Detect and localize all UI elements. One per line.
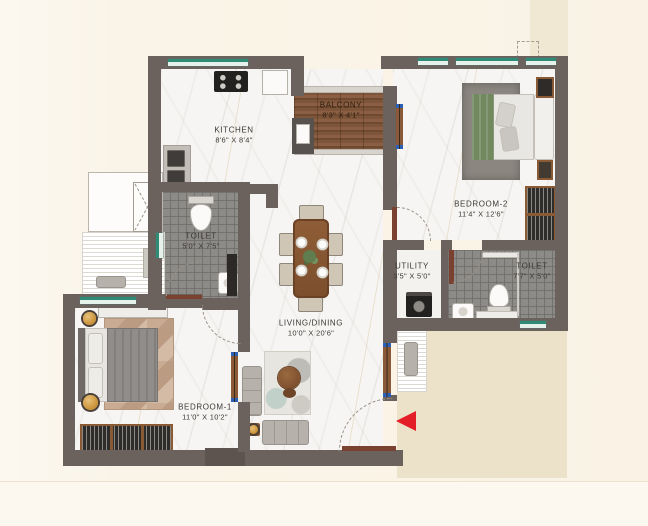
bedroom1-lamp: [83, 312, 96, 325]
living-sliding-door: [383, 343, 391, 397]
room-name: TOILET: [513, 262, 550, 271]
wall: [383, 240, 424, 250]
bedroom2-side-table: [537, 160, 553, 180]
wall: [441, 250, 448, 318]
bedroom2-headboard: [534, 94, 554, 160]
bedroom2-nightstand: [536, 77, 554, 98]
toilet1-cabinet: [227, 254, 237, 296]
bedroom2-pillow: [499, 126, 520, 152]
wall: [555, 56, 568, 331]
room-name: UTILITY: [393, 262, 430, 271]
washing-machine: [406, 292, 432, 317]
wall: [383, 86, 397, 210]
room-name: KITCHEN: [214, 126, 253, 135]
foyer-bench: [96, 276, 126, 288]
toilet1-wc-tank: [188, 196, 214, 204]
room-dims: 7'7" X 5'0": [513, 272, 550, 281]
bedroom2-wardrobe-divider: [526, 213, 555, 216]
wall: [148, 182, 250, 192]
bedroom1-pillow: [88, 367, 103, 398]
wall: [291, 56, 304, 96]
room-dims: 5'0" X 7'5": [182, 242, 219, 251]
dining-chair: [279, 233, 294, 256]
room-name: BALCONY: [320, 101, 362, 110]
toilet2-shelf: [482, 252, 518, 258]
floor-plan: KITCHEN 8'6" X 8'4" BALCONY 8'3" X 4'1" …: [0, 0, 648, 526]
toilet2-wc-bowl: [489, 284, 509, 308]
dinner-plate: [296, 237, 307, 248]
balcony-rail-top: [296, 86, 384, 93]
wall: [482, 240, 555, 250]
bedroom1-window: [80, 297, 136, 304]
room-dims: 11'4" X 12'6": [454, 210, 508, 219]
bedroom1-sliding-door: [231, 352, 238, 402]
room-dims: 8'6" X 8'4": [214, 136, 253, 145]
bedroom1-lamp: [83, 395, 98, 410]
room-dims: 11'0" X 10'2": [178, 413, 232, 422]
shoe-cabinet: [404, 342, 418, 376]
room-name: BEDROOM-2: [454, 200, 508, 209]
room-label-living: LIVING/DINING 10'0" X 20'6": [279, 319, 343, 338]
dining-chair: [298, 297, 323, 312]
dinner-plate: [296, 265, 307, 276]
table-plant: [303, 250, 316, 263]
room-dims: 8'3" X 4'1": [320, 111, 362, 120]
room-label-bedroom2: BEDROOM-2 11'4" X 12'6": [454, 200, 508, 219]
wall: [266, 194, 278, 208]
bedroom1-wardrobe-divider: [110, 425, 113, 452]
room-label-utility: UTILITY 3'5" X 5'0": [393, 262, 430, 281]
bottom-light-band: [0, 481, 648, 526]
dining-chair: [279, 263, 294, 286]
room-dims: 10'0" X 20'6": [279, 329, 343, 338]
balcony-planter: [296, 124, 310, 144]
dining-chair: [328, 263, 343, 286]
room-label-toilet1: TOILET 5'0" X 7'5": [182, 232, 219, 251]
kitchen-fridge: [262, 70, 288, 95]
wall: [148, 56, 161, 188]
coffee-table: [278, 367, 300, 389]
dining-chair: [328, 233, 343, 256]
living-sofa: [262, 420, 309, 445]
dinner-plate: [317, 267, 328, 278]
bedroom1-wardrobe: [80, 424, 173, 453]
bedroom2-window: [418, 58, 448, 65]
foyer-entry-door: [156, 233, 163, 258]
room-name: TOILET: [182, 232, 219, 241]
kitchen-hob: [214, 71, 248, 92]
wall: [238, 190, 250, 310]
coffee-side-table: [283, 388, 296, 398]
toilet2-window: [520, 321, 546, 328]
wall: [441, 240, 452, 250]
kitchen-window: [168, 59, 248, 66]
wall: [63, 294, 75, 466]
wall: [250, 184, 278, 194]
dinner-plate: [317, 239, 328, 250]
room-label-toilet2: TOILET 7'7" X 5'0": [513, 262, 550, 281]
table-lamp: [249, 425, 258, 434]
room-dims: 3'5" X 5'0": [393, 272, 430, 281]
wall: [238, 402, 250, 452]
bedroom1-pillow: [88, 333, 103, 364]
bedroom2-window: [456, 58, 518, 65]
room-name: LIVING/DINING: [279, 319, 343, 328]
room-label-kitchen: KITCHEN 8'6" X 8'4": [214, 126, 253, 145]
room-label-balcony: BALCONY 8'3" X 4'1": [320, 101, 362, 120]
bedroom2-bed-throw: [472, 94, 494, 160]
entry-arrow-icon: [396, 411, 416, 431]
bedroom1-wardrobe-divider: [141, 425, 144, 452]
room-label-bedroom1: BEDROOM-1 11'0" X 10'2": [178, 403, 232, 422]
room-name: BEDROOM-1: [178, 403, 232, 412]
bedroom2-window: [526, 58, 556, 65]
bedroom2-sliding-door: [396, 104, 403, 149]
bedroom1-blanket: [107, 328, 158, 402]
dining-chair: [299, 205, 324, 220]
kitchen-sink-bowl: [167, 150, 185, 167]
